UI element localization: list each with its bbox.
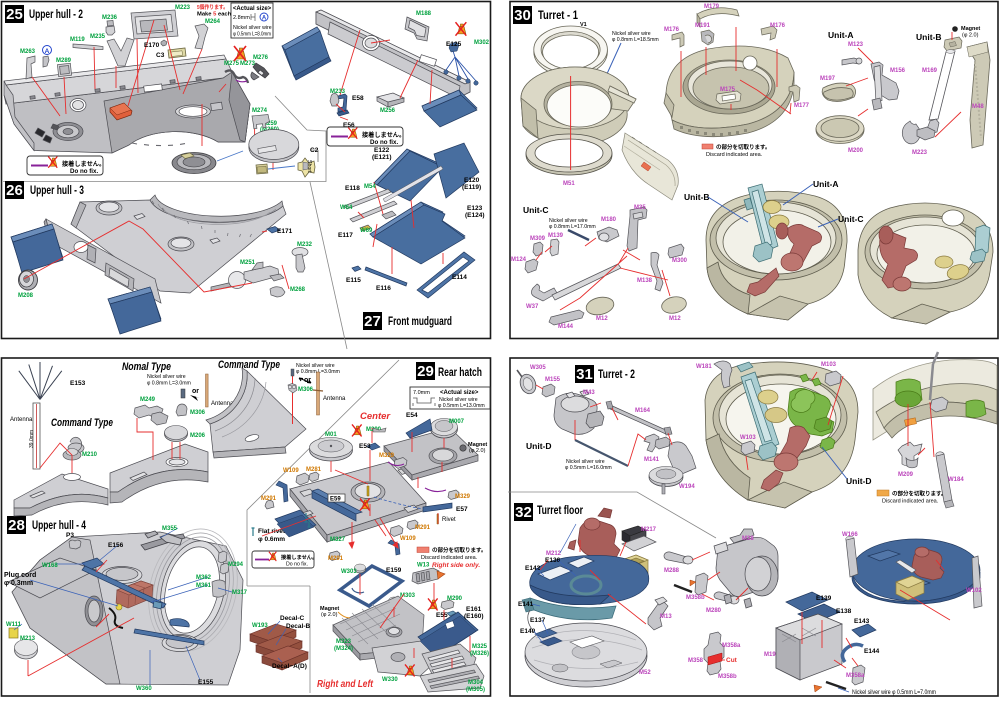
svg-text:M12: M12 (669, 316, 681, 322)
svg-text:M358a: M358a (846, 673, 865, 679)
svg-text:(E124): (E124) (465, 212, 485, 219)
svg-text:<Actual size>: <Actual size> (440, 390, 479, 396)
svg-text:E155: E155 (198, 679, 214, 686)
svg-text:の部分を切取ります。: の部分を切取ります。 (432, 546, 486, 554)
svg-text:Do no fix.: Do no fix. (286, 562, 308, 568)
svg-text:M139: M139 (548, 233, 564, 239)
svg-text:M156: M156 (890, 68, 906, 74)
svg-text:or: or (192, 388, 199, 395)
svg-text:<Actual size>: <Actual size> (233, 6, 272, 12)
svg-text:M35: M35 (634, 205, 646, 211)
svg-text:M302: M302 (474, 40, 490, 46)
svg-text:(M326): (M326) (470, 651, 489, 657)
svg-text:Decal-B: Decal-B (286, 623, 311, 630)
svg-text:M119: M119 (70, 37, 85, 43)
svg-text:M362: M362 (196, 575, 212, 581)
svg-text:M236: M236 (102, 15, 118, 21)
svg-text:Discard indicated area.: Discard indicated area. (706, 152, 763, 158)
svg-text:M300: M300 (672, 258, 688, 264)
svg-text:M235: M235 (90, 34, 106, 40)
svg-text:W303: W303 (341, 569, 357, 575)
svg-text:M007: M007 (449, 419, 465, 425)
svg-text:Decal-C: Decal-C (280, 615, 305, 622)
svg-text:φ 0.8mm L=18.5mm: φ 0.8mm L=18.5mm (612, 37, 659, 43)
svg-text:Front mudguard: Front mudguard (388, 314, 452, 328)
svg-text:M358b: M358b (718, 674, 737, 680)
svg-text:M323: M323 (336, 639, 352, 645)
svg-text:Right side only.: Right side only. (432, 562, 480, 569)
svg-text:5個作ります。: 5個作ります。 (197, 3, 228, 11)
svg-text:P3: P3 (66, 532, 74, 539)
svg-text:M123: M123 (848, 42, 864, 48)
svg-text:M208: M208 (18, 293, 34, 299)
svg-text:Do no fix.: Do no fix. (370, 139, 398, 146)
svg-text:M304: M304 (468, 680, 484, 686)
svg-text:M12: M12 (596, 316, 608, 322)
svg-text:M138: M138 (637, 278, 653, 284)
svg-text:W37: W37 (526, 304, 539, 310)
svg-text:M200: M200 (848, 148, 864, 154)
svg-text:E123: E123 (467, 205, 483, 212)
svg-text:M51: M51 (563, 181, 575, 187)
svg-text:φ 0.5mm L=8.0mm: φ 0.5mm L=8.0mm (233, 32, 271, 38)
svg-text:A: A (262, 16, 267, 22)
svg-text:(φ 2.0): (φ 2.0) (469, 448, 486, 454)
svg-text:M124: M124 (511, 257, 527, 263)
svg-text:M176: M176 (664, 27, 680, 33)
svg-text:M223: M223 (175, 5, 191, 11)
svg-text:W109: W109 (400, 536, 416, 542)
svg-text:Upper hull - 4: Upper hull - 4 (32, 518, 86, 532)
svg-text:M48: M48 (972, 104, 984, 110)
svg-text:W103: W103 (740, 435, 756, 441)
svg-text:W166: W166 (842, 532, 858, 538)
svg-text:E171: E171 (277, 228, 293, 235)
svg-text:E117: E117 (338, 232, 353, 239)
svg-text:の部分を切取ります。: の部分を切取ります。 (716, 143, 770, 151)
svg-text:E54: E54 (406, 412, 418, 419)
svg-text:M43: M43 (583, 390, 595, 396)
svg-text:W181: W181 (696, 364, 712, 370)
svg-text:M233: M233 (330, 89, 346, 95)
svg-text:W102: W102 (966, 588, 982, 594)
svg-text:Turret - 2: Turret - 2 (598, 367, 635, 381)
svg-text:M176: M176 (770, 23, 786, 29)
svg-text:E144: E144 (864, 648, 880, 655)
svg-text:(φ 2.0): (φ 2.0) (321, 612, 338, 618)
svg-text:Unit-C: Unit-C (838, 214, 864, 224)
svg-text:M281: M281 (306, 467, 322, 473)
svg-text:29: 29 (417, 363, 434, 380)
svg-text:M273: M273 (240, 61, 256, 67)
svg-text:26: 26 (6, 182, 23, 199)
svg-text:27: 27 (364, 313, 381, 330)
svg-text:C3: C3 (156, 52, 165, 59)
svg-text:Nickel silver wire φ 0.5mm L=: Nickel silver wire φ 0.5mm L=7.0mm (852, 690, 936, 696)
svg-text:M358a: M358a (722, 643, 741, 649)
svg-text:Short: Short (306, 160, 312, 173)
svg-text:C2: C2 (310, 147, 319, 154)
svg-text:E153: E153 (70, 380, 86, 387)
svg-text:M52: M52 (639, 670, 651, 676)
svg-text:Unit-B: Unit-B (916, 32, 942, 42)
svg-text:M358: M358 (688, 658, 704, 664)
svg-text:Make 5 each.: Make 5 each. (197, 12, 233, 18)
svg-text:Nickel silver wire: Nickel silver wire (233, 25, 272, 31)
svg-text:32: 32 (515, 504, 532, 521)
svg-text:W64: W64 (340, 205, 353, 211)
svg-text:M223: M223 (912, 150, 928, 156)
svg-text:(M324): (M324) (334, 646, 353, 652)
svg-text:M210: M210 (82, 452, 98, 458)
svg-text:Cut: Cut (726, 657, 738, 664)
svg-text:M306: M306 (298, 387, 314, 393)
svg-text:M177: M177 (794, 103, 810, 109)
svg-text:E139: E139 (816, 595, 832, 602)
svg-text:W111: W111 (6, 622, 22, 628)
svg-text:φ 0.3mm: φ 0.3mm (4, 580, 33, 587)
svg-text:E114: E114 (452, 274, 467, 281)
svg-text:W168: W168 (42, 563, 58, 569)
svg-text:M327: M327 (330, 537, 346, 543)
svg-text:φ 0.6mm: φ 0.6mm (258, 536, 285, 543)
svg-text:(E121): (E121) (372, 154, 392, 161)
svg-text:E116: E116 (376, 285, 391, 292)
svg-text:M329: M329 (455, 494, 471, 500)
svg-text:M169: M169 (922, 68, 938, 74)
svg-text:接着しません。: 接着しません。 (362, 131, 405, 139)
svg-text:M288: M288 (664, 568, 680, 574)
svg-text:W109: W109 (283, 468, 299, 474)
svg-text:E120: E120 (464, 177, 480, 184)
svg-text:M01: M01 (325, 432, 337, 438)
svg-text:(E119): (E119) (462, 184, 481, 191)
svg-text:39.0mm: 39.0mm (29, 430, 35, 448)
svg-text:Magnet: Magnet (961, 26, 980, 32)
svg-text:E58: E58 (352, 95, 364, 102)
svg-text:M309: M309 (530, 236, 546, 242)
svg-text:M191: M191 (695, 23, 711, 29)
svg-text:M206: M206 (190, 433, 206, 439)
svg-text:(φ 2.0): (φ 2.0) (962, 33, 979, 39)
svg-text:W194: W194 (679, 484, 695, 490)
svg-text:A: A (45, 48, 50, 55)
svg-text:Plug cord: Plug cord (4, 572, 36, 579)
svg-text:Do no fix.: Do no fix. (70, 168, 98, 175)
svg-text:φ 0.8mm L=17.0mm: φ 0.8mm L=17.0mm (549, 224, 596, 230)
svg-text:E138: E138 (836, 608, 852, 615)
svg-text:M144: M144 (558, 324, 574, 330)
svg-text:Unit-C: Unit-C (523, 205, 549, 215)
svg-text:M355: M355 (162, 526, 178, 532)
svg-text:M280: M280 (706, 608, 722, 614)
svg-text:Turret floor: Turret floor (537, 503, 583, 517)
svg-text:W184: W184 (948, 477, 964, 483)
svg-text:M256: M256 (380, 108, 396, 114)
svg-text:E156: E156 (108, 542, 124, 549)
svg-text:Decal~A(D): Decal~A(D) (272, 663, 307, 670)
svg-text:E142: E142 (525, 565, 541, 572)
svg-text:φ 0.5mm L=13.0mm: φ 0.5mm L=13.0mm (438, 403, 485, 409)
svg-text:M329: M329 (379, 453, 395, 459)
svg-text:Rear hatch: Rear hatch (438, 365, 482, 379)
svg-text:Upper hull - 2: Upper hull - 2 (29, 7, 83, 21)
svg-text:Discard indicated area.: Discard indicated area. (421, 555, 478, 561)
svg-text:Unit-D: Unit-D (846, 476, 872, 486)
svg-text:M291: M291 (261, 496, 277, 502)
svg-text:Right and Left: Right and Left (317, 679, 374, 690)
svg-text:M358b: M358b (686, 595, 705, 601)
svg-text:E59: E59 (330, 497, 341, 503)
svg-text:M213: M213 (20, 636, 36, 642)
svg-text:7.0mm: 7.0mm (413, 390, 430, 396)
svg-text:M175: M175 (720, 87, 736, 93)
svg-text:E159: E159 (386, 567, 402, 574)
svg-text:接着しません。: 接着しません。 (62, 160, 105, 168)
svg-text:E115: E115 (346, 277, 361, 284)
svg-text:W330: W330 (382, 677, 398, 683)
svg-text:M141: M141 (644, 457, 660, 463)
svg-text:M291: M291 (328, 556, 344, 562)
svg-text:M325: M325 (472, 644, 488, 650)
svg-text:E53: E53 (359, 443, 371, 450)
svg-text:M155: M155 (545, 377, 561, 383)
svg-text:M164: M164 (635, 408, 651, 414)
svg-text:M103: M103 (821, 362, 837, 368)
svg-text:E161: E161 (466, 606, 482, 613)
svg-text:M317: M317 (232, 590, 248, 596)
svg-text:M264: M264 (205, 19, 221, 25)
svg-text:Command Type: Command Type (51, 417, 113, 429)
svg-text:M276: M276 (253, 55, 269, 61)
svg-text:M294: M294 (228, 562, 244, 568)
svg-text:接着しません。: 接着しません。 (281, 553, 317, 561)
svg-text:M188: M188 (416, 11, 432, 17)
svg-text:Antenna: Antenna (323, 396, 346, 402)
svg-text:Nickel silver wire: Nickel silver wire (147, 374, 186, 380)
svg-text:Unit-D: Unit-D (526, 441, 552, 451)
svg-text:W13: W13 (417, 563, 430, 569)
svg-text:Discard indicated area.: Discard indicated area. (882, 499, 939, 505)
svg-text:(E160): (E160) (464, 613, 484, 620)
svg-text:M290: M290 (447, 596, 463, 602)
svg-text:M275: M275 (224, 61, 240, 67)
svg-text:W360: W360 (136, 686, 152, 692)
svg-text:M274: M274 (252, 108, 268, 114)
svg-text:M306: M306 (190, 410, 206, 416)
svg-text:Antenna: Antenna (10, 417, 33, 423)
svg-text:(M305): (M305) (466, 687, 485, 693)
svg-text:Turret - 1: Turret - 1 (538, 8, 578, 22)
svg-text:E143: E143 (854, 618, 870, 625)
svg-text:の部分を切取ります。: の部分を切取ります。 (892, 490, 946, 498)
svg-text:Rivet: Rivet (442, 517, 456, 523)
svg-text:E170: E170 (144, 42, 160, 49)
svg-text:31: 31 (576, 366, 593, 383)
svg-text:Center: Center (360, 411, 391, 422)
svg-text:M263: M263 (20, 49, 36, 55)
svg-text:M179: M179 (704, 4, 720, 10)
svg-text:E140: E140 (520, 628, 536, 635)
svg-text:M13: M13 (660, 614, 672, 620)
svg-text:M268: M268 (290, 287, 306, 293)
svg-text:Upper hull - 3: Upper hull - 3 (30, 183, 84, 197)
svg-text:28: 28 (8, 517, 25, 534)
svg-text:M291: M291 (415, 525, 431, 531)
svg-text:E141: E141 (518, 601, 534, 608)
svg-text:M232: M232 (297, 242, 313, 248)
svg-text:E55: E55 (436, 612, 448, 619)
svg-text:M38: M38 (742, 536, 754, 542)
svg-text:E122: E122 (374, 147, 390, 154)
svg-text:25: 25 (6, 6, 23, 23)
svg-text:M197: M197 (820, 76, 836, 82)
svg-text:M251: M251 (240, 260, 256, 266)
svg-text:M249: M249 (140, 397, 156, 403)
svg-text:30: 30 (514, 7, 531, 24)
svg-text:M209: M209 (898, 472, 914, 478)
svg-text:φ 0.8mm L=3.0mm: φ 0.8mm L=3.0mm (147, 381, 191, 387)
svg-text:V1: V1 (580, 22, 587, 28)
svg-text:M289: M289 (56, 58, 72, 64)
svg-text:W305: W305 (530, 365, 546, 371)
svg-text:W193: W193 (252, 623, 268, 629)
svg-text:Unit-A: Unit-A (828, 30, 854, 40)
svg-text:M361: M361 (196, 583, 212, 589)
svg-text:2.8mm: 2.8mm (233, 15, 250, 21)
svg-text:Nomal Type: Nomal Type (122, 361, 171, 373)
svg-text:φ 0.5mm L=16.0mm: φ 0.5mm L=16.0mm (565, 465, 612, 471)
svg-text:W69: W69 (360, 228, 373, 234)
svg-text:M54: M54 (364, 184, 376, 190)
svg-text:E57: E57 (456, 506, 468, 513)
svg-text:Command Type: Command Type (218, 359, 280, 371)
svg-text:M217: M217 (641, 527, 657, 533)
svg-text:Unit-A: Unit-A (813, 179, 839, 189)
svg-text:M180: M180 (601, 217, 617, 223)
svg-text:Unit-B: Unit-B (684, 192, 710, 202)
svg-text:E125: E125 (446, 41, 462, 48)
svg-text:E118: E118 (345, 185, 360, 192)
